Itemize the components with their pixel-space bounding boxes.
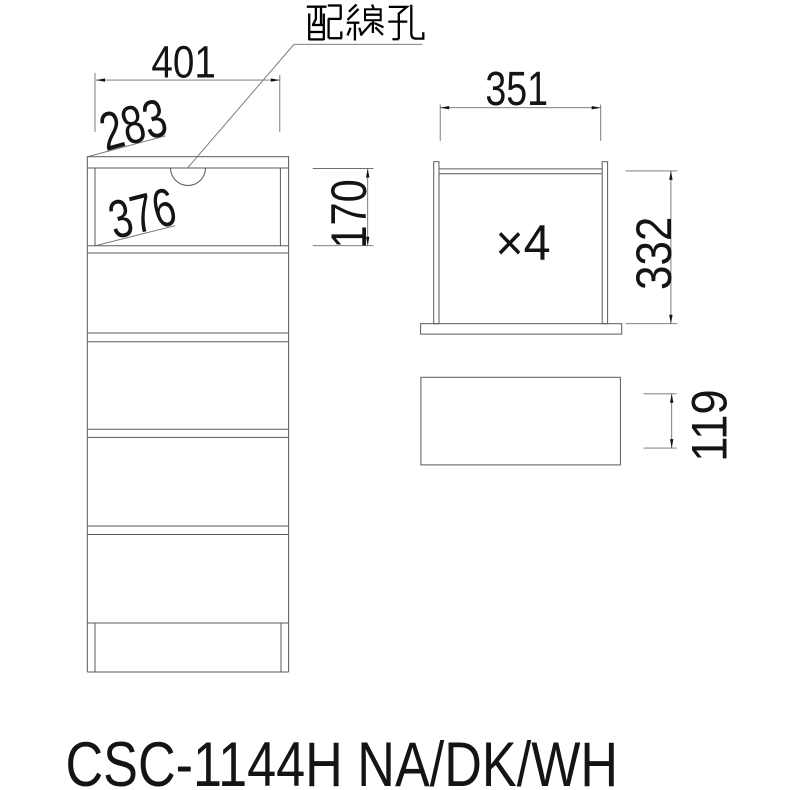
svg-text:CSC-1144H NA/DK/WH: CSC-1144H NA/DK/WH xyxy=(66,730,619,790)
svg-text:119: 119 xyxy=(683,389,738,462)
svg-text:170: 170 xyxy=(320,179,377,248)
svg-text:332: 332 xyxy=(625,217,681,290)
svg-text:351: 351 xyxy=(485,63,548,117)
svg-text:×4: ×4 xyxy=(495,215,550,271)
svg-text:401: 401 xyxy=(151,37,216,88)
